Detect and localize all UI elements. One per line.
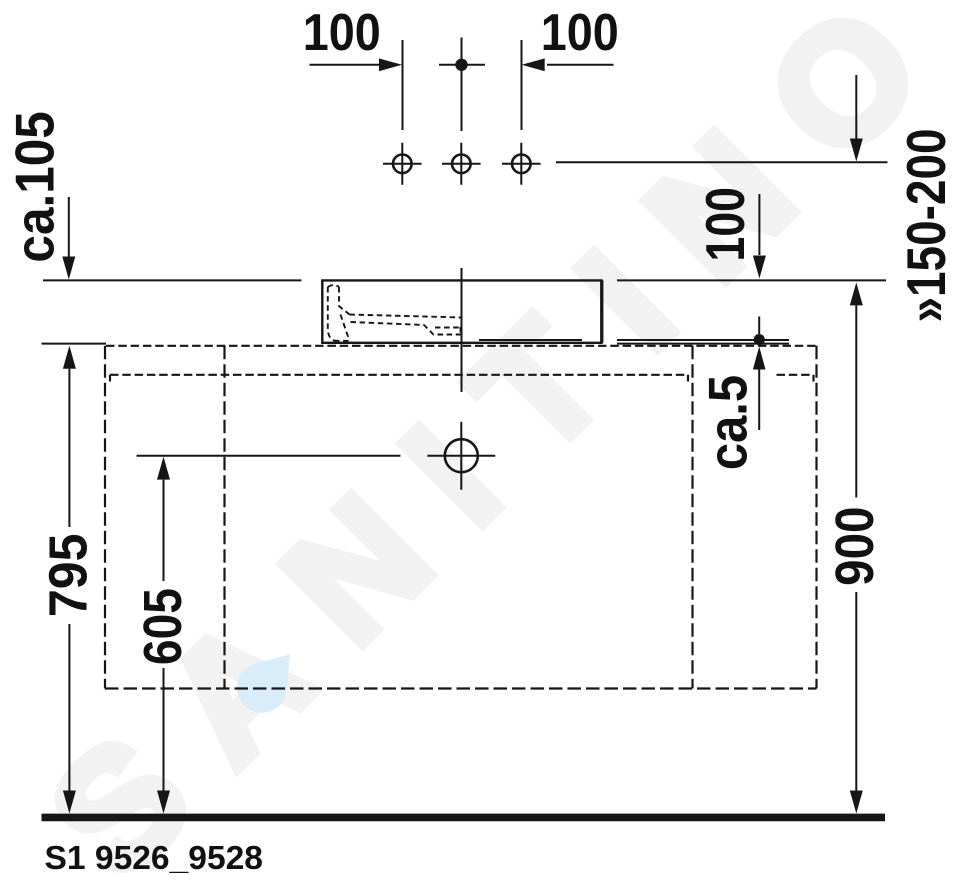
svg-text:100: 100 — [541, 4, 619, 62]
svg-text:S1 9526_9528: S1 9526_9528 — [45, 840, 263, 877]
svg-text:900: 900 — [824, 507, 885, 586]
svg-text:ca.105: ca.105 — [5, 111, 66, 262]
svg-text:»150-200: »150-200 — [895, 128, 957, 322]
svg-text:605: 605 — [132, 588, 192, 665]
svg-text:100: 100 — [695, 187, 757, 261]
svg-text:ca.5: ca.5 — [698, 375, 759, 470]
svg-text:100: 100 — [303, 4, 381, 62]
svg-text:795: 795 — [39, 533, 99, 617]
